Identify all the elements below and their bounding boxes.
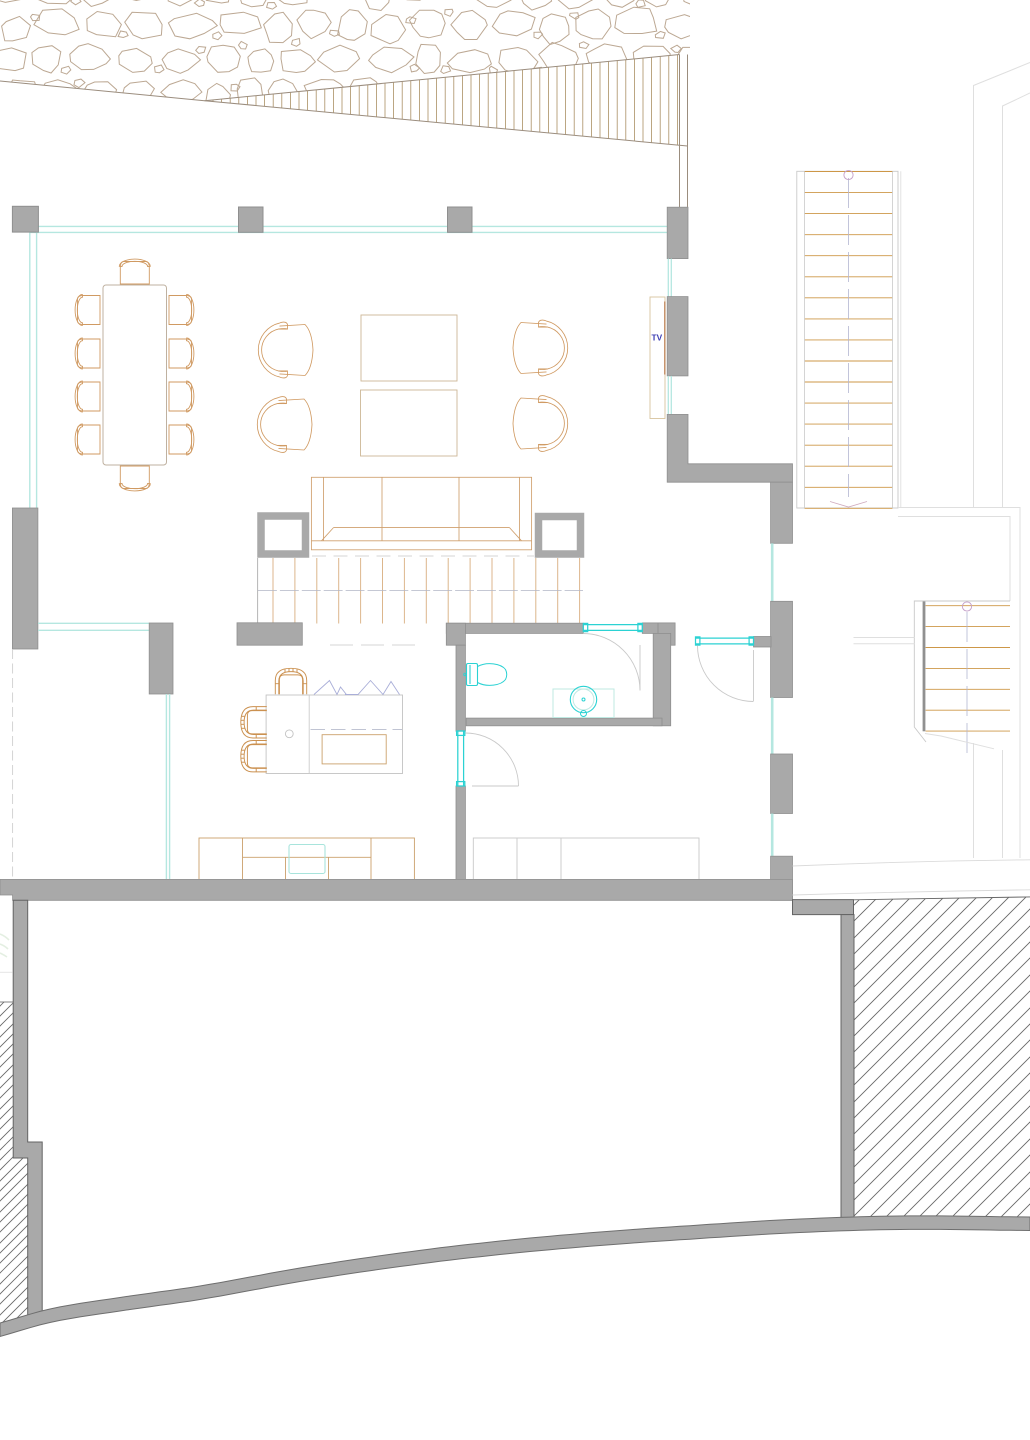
svg-text:TV: TV bbox=[652, 333, 663, 343]
